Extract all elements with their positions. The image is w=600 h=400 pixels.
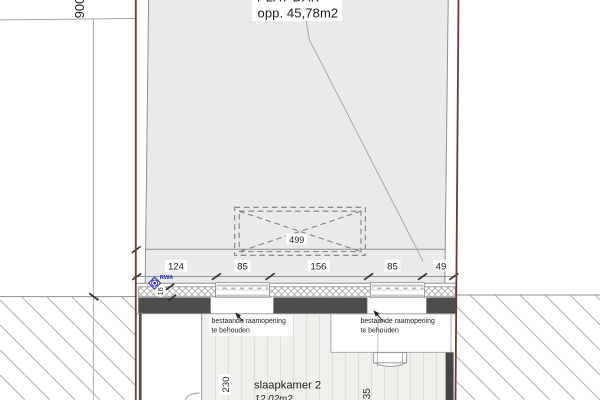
svg-text:135: 135	[362, 388, 373, 400]
svg-text:slaapkamer 2: slaapkamer 2	[254, 380, 321, 392]
svg-text:85: 85	[237, 261, 248, 272]
svg-text:bestaande raamopening: bestaande raamopening	[212, 318, 286, 325]
svg-text:156: 156	[310, 261, 326, 272]
svg-text:124: 124	[168, 261, 185, 272]
svg-text:opp. 45,78m2: opp. 45,78m2	[258, 6, 339, 21]
svg-text:bestaande raamopening: bestaande raamopening	[361, 318, 435, 325]
svg-text:900: 900	[72, 0, 87, 18]
svg-text:RWA: RWA	[160, 275, 174, 281]
svg-text:te behouden: te behouden	[212, 328, 250, 335]
svg-text:te behouden: te behouden	[361, 328, 399, 335]
svg-text:499: 499	[289, 235, 304, 245]
svg-text:230: 230	[221, 376, 232, 392]
svg-text:PLAT DAK: PLAT DAK	[257, 0, 320, 5]
svg-text:85: 85	[387, 261, 398, 272]
svg-text:16: 16	[158, 287, 165, 295]
svg-text:49: 49	[436, 261, 447, 272]
svg-text:12,02m2: 12,02m2	[255, 394, 294, 400]
